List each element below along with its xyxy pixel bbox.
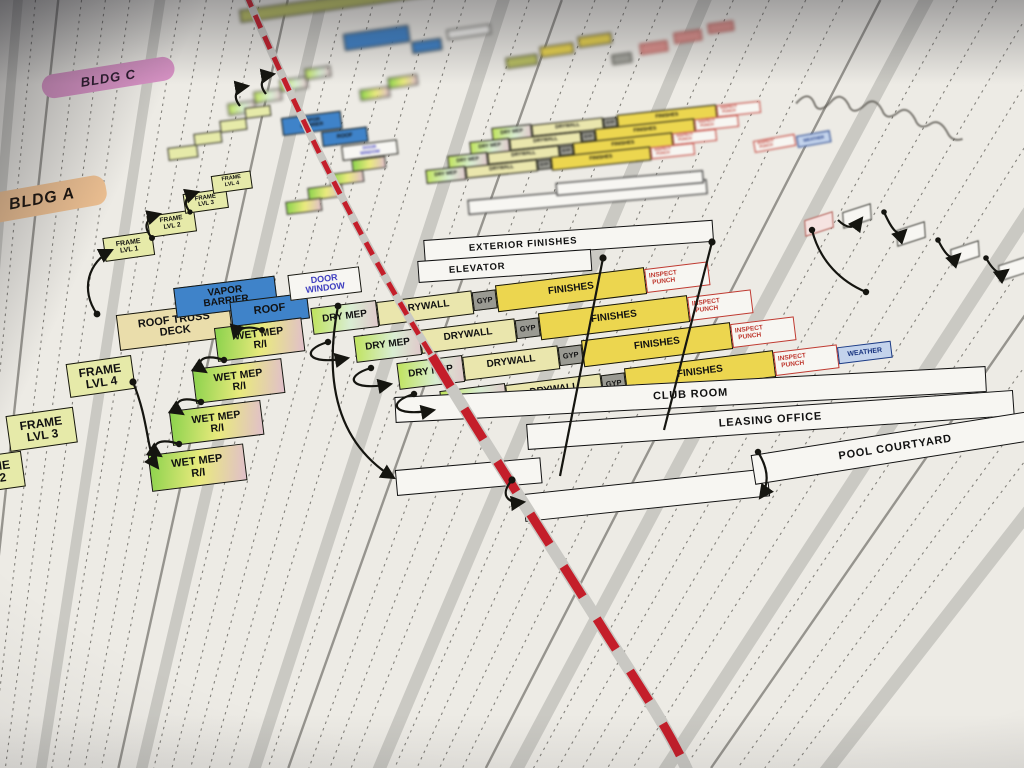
task-label: WEATHER xyxy=(847,347,882,358)
task-label: DRY MEP xyxy=(408,365,454,381)
task-label: DRYWALL xyxy=(486,355,536,371)
task-label: PUNCH xyxy=(738,332,762,341)
task-label: DRY MEP xyxy=(365,338,411,354)
task-weather: WEATHER xyxy=(837,341,893,364)
task-label: LVL 3 xyxy=(26,427,59,444)
task-label: FINISHES xyxy=(677,365,724,381)
task-label: FINISHES xyxy=(634,337,681,353)
small-task-box xyxy=(896,221,926,247)
task-label: DRYWALL xyxy=(443,328,493,344)
task-label: GYP xyxy=(519,324,536,334)
small-task-box xyxy=(804,211,834,237)
task-label: GYP xyxy=(562,351,579,361)
task-gyp: GYP xyxy=(558,344,584,366)
task-label: DECK xyxy=(159,324,191,339)
task-label: DRYWALL xyxy=(400,300,450,316)
task-label: FINISHES xyxy=(591,310,638,326)
schedule-board-photo: VAPOR BARRIER ROOF DOOR WINDOW DRY MEP D… xyxy=(0,0,1024,768)
small-task-box xyxy=(950,240,980,266)
bar-label: LEASING OFFICE xyxy=(718,410,822,429)
task-label: PUNCH xyxy=(695,305,719,314)
task-label: LVL 4 xyxy=(85,374,118,391)
task-label: R/I xyxy=(253,339,268,351)
bar-label: CLUB ROOM xyxy=(653,387,729,403)
task-label: R/I xyxy=(191,467,206,480)
task-label: DRY MEP xyxy=(322,310,368,326)
handwritten-note xyxy=(780,90,1020,160)
task-label: PUNCH xyxy=(781,360,805,369)
task-label: R/I xyxy=(232,380,247,392)
small-task-box xyxy=(998,256,1024,282)
small-task-box xyxy=(842,203,872,229)
task-label: LVL 2 xyxy=(0,471,7,488)
task-label: ROOF xyxy=(253,303,286,318)
task-gyp: GYP xyxy=(515,317,541,339)
task-label: R/I xyxy=(210,422,225,434)
